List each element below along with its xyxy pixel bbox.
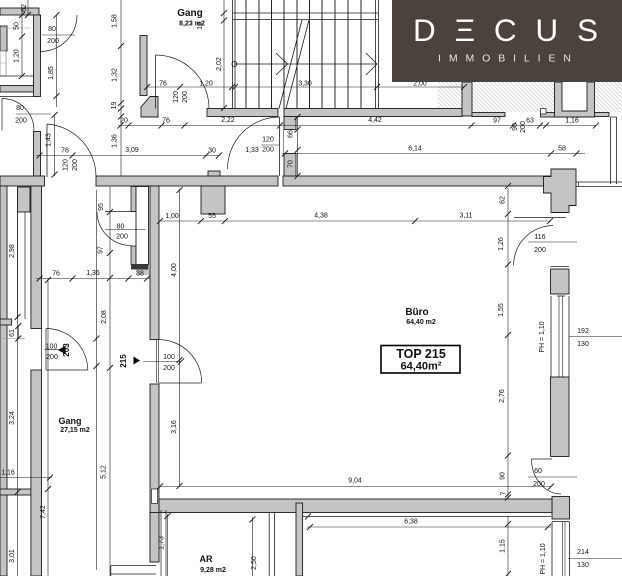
svg-text:200: 200 (520, 121, 527, 133)
svg-text:4,00: 4,00 (171, 263, 178, 277)
svg-text:120: 120 (262, 137, 274, 144)
svg-text:214: 214 (577, 549, 589, 556)
svg-text:TOP 215: TOP 215 (396, 347, 446, 361)
svg-text:1,32: 1,32 (112, 68, 119, 82)
svg-text:1,20: 1,20 (199, 81, 213, 88)
svg-text:38: 38 (136, 271, 144, 278)
svg-text:9,04: 9,04 (348, 478, 362, 485)
svg-text:Gang: Gang (58, 416, 81, 426)
svg-text:62: 62 (500, 196, 507, 204)
svg-text:2,76: 2,76 (499, 389, 506, 403)
svg-text:1,00: 1,00 (165, 213, 179, 220)
svg-text:80: 80 (16, 105, 24, 112)
svg-text:61: 61 (9, 329, 16, 337)
svg-text:200: 200 (116, 234, 128, 241)
svg-text:27,15 m2: 27,15 m2 (60, 427, 90, 434)
svg-text:1,43: 1,43 (46, 133, 53, 147)
svg-text:30: 30 (208, 148, 216, 155)
svg-text:1,16: 1,16 (1, 470, 15, 477)
svg-text:200: 200 (15, 118, 27, 125)
svg-text:64,40 m2: 64,40 m2 (406, 319, 436, 326)
svg-text:2,98: 2,98 (9, 244, 16, 258)
svg-text:8,23 m2: 8,23 m2 (179, 21, 205, 28)
svg-text:60: 60 (534, 468, 542, 475)
svg-text:1,36: 1,36 (112, 134, 119, 148)
svg-text:200: 200 (533, 481, 545, 488)
svg-text:76: 76 (159, 81, 167, 88)
svg-text:6,38: 6,38 (404, 519, 418, 526)
svg-text:1,15: 1,15 (500, 539, 507, 553)
svg-text:200: 200 (163, 365, 175, 372)
svg-text:50: 50 (14, 22, 21, 30)
svg-text:4,42: 4,42 (368, 117, 382, 124)
svg-text:1,58: 1,58 (112, 14, 119, 28)
svg-text:192: 192 (577, 328, 589, 335)
svg-text:63: 63 (526, 118, 534, 125)
svg-text:200: 200 (47, 38, 59, 45)
svg-text:1,36: 1,36 (86, 270, 100, 277)
svg-text:1,73: 1,73 (159, 536, 166, 550)
svg-text:3,01: 3,01 (9, 549, 16, 563)
svg-text:76: 76 (52, 271, 60, 278)
svg-text:200: 200 (534, 247, 546, 254)
svg-text:1,33: 1,33 (245, 147, 259, 154)
svg-text:Büro: Büro (405, 307, 428, 318)
svg-text:64,40m²: 64,40m² (401, 361, 442, 373)
svg-text:PH = 1,10: PH = 1,10 (539, 321, 546, 352)
svg-text:130: 130 (577, 341, 589, 348)
svg-text:76: 76 (61, 148, 69, 155)
svg-text:3,16: 3,16 (171, 420, 178, 434)
svg-text:116: 116 (534, 234, 545, 241)
svg-text:3,30: 3,30 (298, 81, 312, 88)
svg-text:95: 95 (98, 203, 105, 211)
svg-text:5,12: 5,12 (101, 465, 108, 479)
svg-text:130: 130 (577, 562, 589, 569)
svg-text:Gang: Gang (177, 8, 203, 19)
svg-text:120: 120 (63, 159, 70, 171)
svg-text:215: 215 (119, 354, 128, 368)
svg-text:1,20: 1,20 (14, 49, 21, 63)
svg-text:9,28 m2: 9,28 m2 (200, 567, 226, 574)
svg-text:97: 97 (98, 246, 105, 254)
svg-text:66: 66 (288, 130, 295, 138)
svg-text:76: 76 (162, 118, 170, 125)
svg-text:1,55: 1,55 (498, 303, 505, 317)
svg-text:97: 97 (493, 118, 501, 125)
svg-text:2,02: 2,02 (216, 57, 223, 71)
svg-text:200: 200 (182, 91, 189, 103)
svg-text:19: 19 (111, 102, 118, 110)
svg-text:55: 55 (208, 213, 216, 220)
svg-text:120: 120 (173, 91, 180, 103)
svg-text:200: 200 (262, 147, 274, 154)
svg-text:80: 80 (48, 26, 56, 33)
svg-text:4,38: 4,38 (314, 213, 328, 220)
svg-text:90: 90 (500, 472, 507, 480)
svg-text:7: 7 (501, 491, 508, 495)
svg-text:1,85: 1,85 (48, 66, 55, 80)
svg-text:1,16: 1,16 (565, 118, 579, 125)
svg-text:PH = 1,10: PH = 1,10 (540, 543, 547, 574)
svg-text:3,11: 3,11 (459, 213, 472, 220)
svg-text:90: 90 (512, 123, 519, 131)
svg-text:200: 200 (46, 354, 58, 361)
svg-text:1,26: 1,26 (498, 237, 505, 251)
svg-text:2,50: 2,50 (251, 556, 258, 570)
svg-text:7,42: 7,42 (40, 505, 47, 519)
svg-text:2,22: 2,22 (221, 117, 235, 124)
svg-text:58: 58 (558, 146, 566, 153)
svg-text:6,14: 6,14 (408, 146, 422, 153)
svg-text:AR: AR (200, 554, 213, 564)
svg-text:70: 70 (288, 160, 295, 168)
svg-text:200: 200 (72, 159, 79, 171)
svg-text:2,08: 2,08 (101, 310, 108, 324)
svg-text:3,24: 3,24 (9, 411, 16, 425)
svg-text:203: 203 (62, 343, 71, 357)
svg-text:100: 100 (163, 354, 175, 361)
svg-text:3,09: 3,09 (125, 147, 139, 154)
svg-text:62: 62 (21, 4, 28, 12)
